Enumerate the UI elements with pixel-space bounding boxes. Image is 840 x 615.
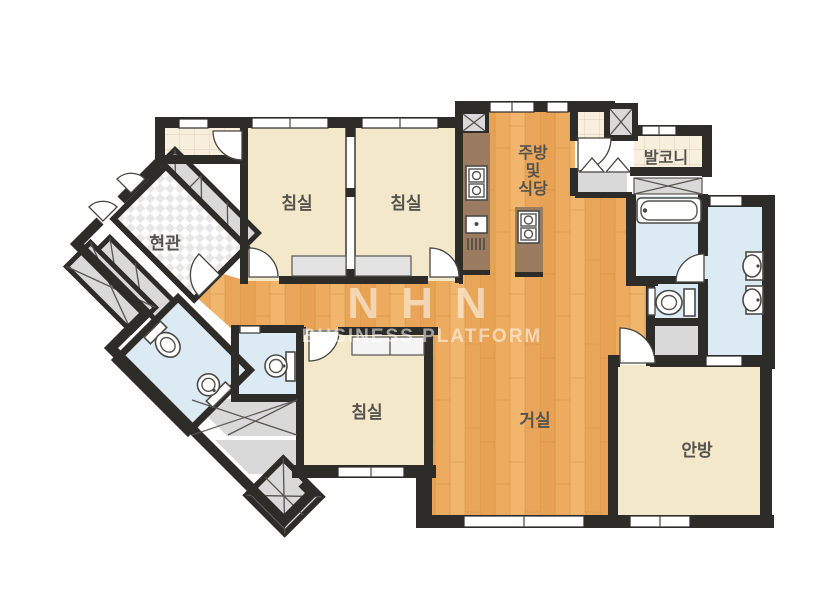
sink-icon xyxy=(743,252,763,280)
room-label-bedroom-2: 침실 xyxy=(390,193,421,213)
room-label-master: 안방 xyxy=(681,441,713,460)
bathtub-icon xyxy=(637,198,701,223)
watermark-line2: BUSINESS PLATFORM xyxy=(302,326,543,347)
stove-icon xyxy=(466,166,487,200)
window xyxy=(706,356,742,366)
window xyxy=(338,467,404,477)
wardrobe xyxy=(292,256,346,276)
sink-icon xyxy=(743,286,763,314)
closet-x-balcony xyxy=(634,178,702,194)
floor-plan: NHN BUSINESS PLATFORM 침실 침실 주방 및 식당 발코니 … xyxy=(0,0,840,615)
room-label-kitchen-3: 식당 xyxy=(518,180,548,198)
pantry-tile xyxy=(576,110,606,142)
kitchen-island xyxy=(515,207,543,277)
door-gap xyxy=(240,326,260,333)
window xyxy=(464,516,584,527)
stove-icon xyxy=(518,211,539,243)
utility-area xyxy=(652,322,700,358)
wardrobe xyxy=(355,256,411,276)
window xyxy=(252,118,328,128)
room-label-kitchen-1: 주방 xyxy=(518,144,548,162)
room-label-bedroom-3: 침실 xyxy=(351,402,382,422)
room-label-living: 거실 xyxy=(519,411,550,430)
pantry-step xyxy=(577,172,627,194)
room-powder-floor xyxy=(704,204,764,358)
door-leaf xyxy=(648,288,655,315)
duct-icon xyxy=(604,103,638,141)
window xyxy=(630,516,690,527)
watermark-line1: NHN xyxy=(347,279,508,328)
room-label-balcony: 발코니 xyxy=(644,149,688,167)
window xyxy=(490,102,534,112)
window xyxy=(710,196,742,206)
window xyxy=(362,118,438,128)
room-label-bedroom-1: 침실 xyxy=(281,193,312,213)
kitchen-counter xyxy=(463,133,490,275)
window xyxy=(547,102,568,112)
duct-icon xyxy=(459,110,489,135)
toilet-icon xyxy=(656,289,695,316)
room-label-entrance: 현관 xyxy=(149,234,181,253)
window xyxy=(179,119,208,128)
kitchen-sink-icon xyxy=(466,216,487,233)
partition-wall xyxy=(346,128,355,278)
room-label-kitchen-2: 및 xyxy=(526,161,541,180)
window xyxy=(642,126,676,135)
